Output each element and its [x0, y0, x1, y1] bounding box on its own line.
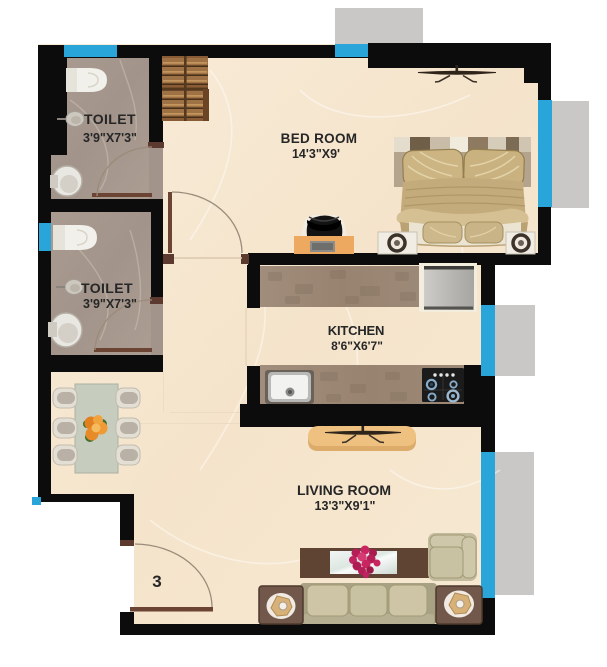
- svg-text:KITCHEN: KITCHEN: [328, 323, 384, 338]
- svg-text:3: 3: [152, 572, 161, 591]
- svg-text:TOILET: TOILET: [84, 111, 136, 127]
- svg-text:3'9"X7'3": 3'9"X7'3": [83, 297, 137, 311]
- svg-text:14'3"X9': 14'3"X9': [292, 147, 340, 161]
- svg-text:BED ROOM: BED ROOM: [281, 131, 358, 146]
- svg-text:TOILET: TOILET: [81, 280, 133, 296]
- svg-text:13'3"X9'1": 13'3"X9'1": [315, 499, 376, 513]
- svg-text:LIVING ROOM: LIVING ROOM: [297, 482, 391, 498]
- svg-text:3'9"X7'3": 3'9"X7'3": [83, 131, 137, 145]
- svg-text:8'6"X6'7": 8'6"X6'7": [331, 339, 383, 353]
